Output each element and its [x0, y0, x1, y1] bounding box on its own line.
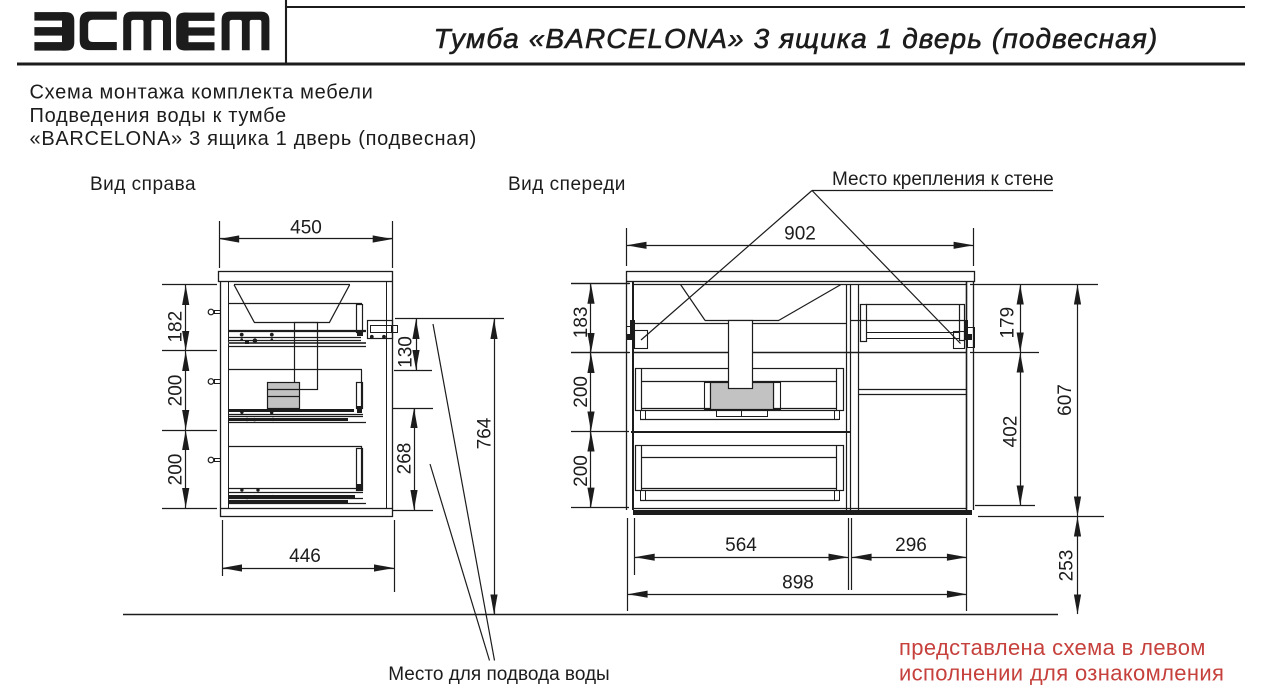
svg-text:Схема монтажа комплекта мебели: Схема монтажа комплекта мебели — [30, 82, 374, 104]
svg-text:268: 268 — [395, 443, 416, 475]
svg-text:296: 296 — [895, 535, 927, 556]
svg-text:253: 253 — [1057, 550, 1078, 582]
svg-text:Подведения воды к тумбе: Подведения воды к тумбе — [30, 105, 287, 127]
svg-text:200: 200 — [166, 454, 187, 486]
svg-text:исполнении для ознакомления: исполнении для ознакомления — [899, 661, 1224, 686]
svg-text:Вид спереди: Вид спереди — [508, 174, 626, 195]
svg-text:446: 446 — [289, 546, 321, 567]
svg-text:764: 764 — [475, 417, 496, 449]
svg-text:представлена схема в левом: представлена схема в левом — [899, 635, 1206, 660]
svg-text:Место для подвода воды: Место для подвода воды — [388, 664, 609, 685]
svg-text:402: 402 — [1001, 416, 1022, 448]
svg-text:898: 898 — [782, 573, 814, 594]
svg-text:130: 130 — [396, 336, 417, 368]
svg-text:200: 200 — [166, 375, 187, 407]
svg-text:Вид справа: Вид справа — [90, 174, 196, 195]
svg-text:182: 182 — [166, 311, 187, 343]
svg-text:183: 183 — [571, 307, 592, 339]
svg-text:200: 200 — [571, 376, 592, 408]
svg-text:607: 607 — [1055, 384, 1076, 416]
svg-text:450: 450 — [290, 218, 322, 239]
svg-text:200: 200 — [571, 455, 592, 487]
svg-text:Тумба «BARCELONA» 3 ящика 1 дв: Тумба «BARCELONA» 3 ящика 1 дверь (подве… — [434, 23, 1159, 54]
svg-text:Место крепления к стене: Место крепления к стене — [832, 169, 1054, 190]
svg-text:564: 564 — [725, 535, 757, 556]
svg-text:902: 902 — [784, 224, 816, 245]
svg-text:179: 179 — [998, 307, 1019, 339]
svg-text:«BARCELONA» 3 ящика 1 дверь (п: «BARCELONA» 3 ящика 1 дверь (подвесная) — [30, 128, 477, 150]
